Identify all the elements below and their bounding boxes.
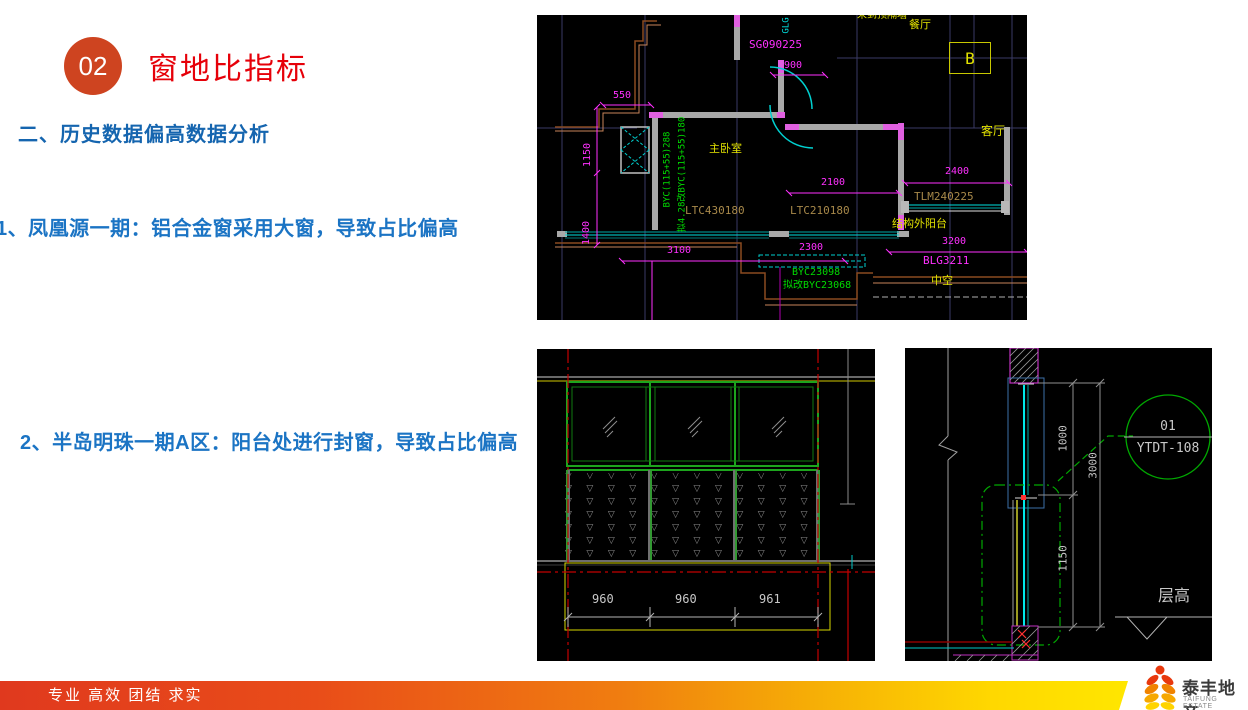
sect-callout-number: 01 <box>1128 420 1208 433</box>
presentation-slide: 02 窗地比指标 二、历史数据偏高数据分析 1、凤凰源一期：铝合金窗采用大窗，导… <box>0 0 1248 710</box>
fp-dim-550: 550 <box>613 91 631 101</box>
fp-dim-3100: 3100 <box>667 246 691 256</box>
fp-byc-v2-label: 拟4.28改BYC(115+55)180 <box>679 105 688 245</box>
fp-ltc-right-label: LTC210180 <box>790 205 850 216</box>
fp-byc-b2-label: 拟改BYC23068 <box>783 281 851 291</box>
fp-dim-3200: 3200 <box>942 237 966 247</box>
fp-grid-bubble-b: B <box>949 42 991 74</box>
company-name-en: TAIFUNG ESTATE <box>1183 696 1246 710</box>
window-elevation-drawing: ▽ ▽ ▽ ▽ ▽ ▽ ▽ ▽ ▽ ▽ ▽ ▽ ▽ ▽ ▽ ▽ ▽ ▽ ▽ ▽ … <box>537 349 875 661</box>
fp-sg-label: SG090225 <box>749 39 802 50</box>
fp-top-partition-label: 未到顶隔墙 <box>857 15 907 21</box>
sect-level-label: 层高 <box>1158 588 1190 604</box>
bullet-item-2: 2、半岛明珠一期A区：阳台处进行封窗，导致占比偏高 <box>20 426 518 455</box>
fp-living-label: 客厅 <box>981 125 1005 137</box>
section-number-badge: 02 <box>64 37 122 95</box>
page-title: 窗地比指标 <box>148 44 308 88</box>
fp-blg-label: BLG3211 <box>923 255 969 266</box>
section-heading: 二、历史数据偏高数据分析 <box>18 118 270 147</box>
company-slogan: 专业 高效 团结 求实 <box>48 681 203 710</box>
sect-dim-3000: 3000 <box>1088 446 1099 486</box>
fp-ltc-left-label: LTC430180 <box>685 205 745 216</box>
sect-dim-1000: 1000 <box>1058 419 1069 459</box>
bullet-item-1: 1、凤凰源一期：铝合金窗采用大窗，导致占比偏高 <box>0 212 459 241</box>
elev-dim-c: 961 <box>759 593 781 605</box>
floor-plan-drawing: 未到顶隔墙 GLG SG090225 900 B 餐厅 客厅 550 1150 … <box>537 15 1027 320</box>
elev-dim-a: 960 <box>592 593 614 605</box>
fp-balcony-label: 结构外阳台 <box>892 218 947 229</box>
fp-dim-2100: 2100 <box>821 178 845 188</box>
company-logo: 泰丰地产 TAIFUNG ESTATE <box>1142 664 1246 710</box>
fp-dim-900: 900 <box>784 61 802 71</box>
fp-dim-2300: 2300 <box>799 243 823 253</box>
taifung-logo-icon <box>1142 664 1178 710</box>
fp-glg-label: GLG <box>783 17 792 33</box>
fp-tlm-label: TLM240225 <box>914 191 974 202</box>
fp-dim-1400: 1400 <box>582 216 592 250</box>
elevation-lines <box>537 349 875 661</box>
sect-callout-code: YTDT-108 <box>1128 442 1208 455</box>
fp-dim-1150: 1150 <box>583 138 593 172</box>
fp-byc-b1-label: BYC23098 <box>792 268 840 278</box>
fp-dim-2400: 2400 <box>945 167 969 177</box>
elev-dim-b: 960 <box>675 593 697 605</box>
footer-bar: 专业 高效 团结 求实 <box>0 681 1128 710</box>
sect-dim-1150: 1150 <box>1058 539 1069 579</box>
fp-hollow-label: 中空 <box>931 275 953 286</box>
section-lines <box>905 348 1212 661</box>
fp-master-bedroom-label: 主卧室 <box>709 143 742 154</box>
fp-byc-v1-label: BYC(115+55)288 <box>664 105 673 235</box>
section-detail-drawing: 1000 3000 1150 01 YTDT-108 层高 <box>905 348 1212 661</box>
fp-dining-label: 餐厅 <box>909 19 931 30</box>
